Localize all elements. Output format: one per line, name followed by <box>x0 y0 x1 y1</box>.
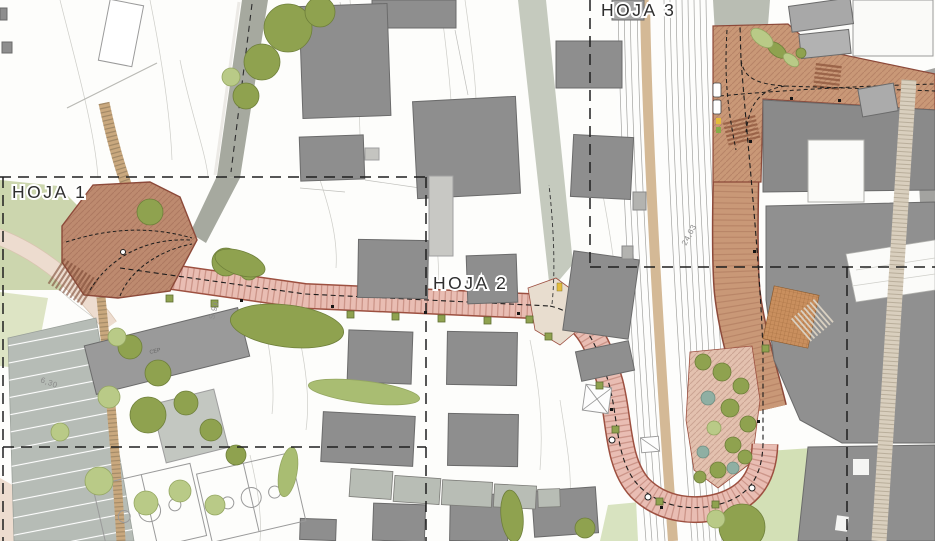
sheet-label-hoja-1: HOJA 1 <box>12 182 87 202</box>
sheet-label-hoja-3: HOJA 3 <box>601 0 676 20</box>
signal-marker-green <box>716 127 721 133</box>
car-icon <box>713 100 721 114</box>
site-plan-canvas: HOJA 1 HOJA 2 HOJA 3 24,63 S 90 6,30 CEP <box>0 0 935 541</box>
bus-stop-marker <box>557 283 562 291</box>
car-icon <box>713 83 721 97</box>
site-plan-map[interactable]: HOJA 1 HOJA 2 HOJA 3 24,63 S 90 6,30 CEP <box>0 0 935 541</box>
signal-marker-yellow <box>716 118 721 124</box>
sheet-label-hoja-2: HOJA 2 <box>433 273 508 293</box>
